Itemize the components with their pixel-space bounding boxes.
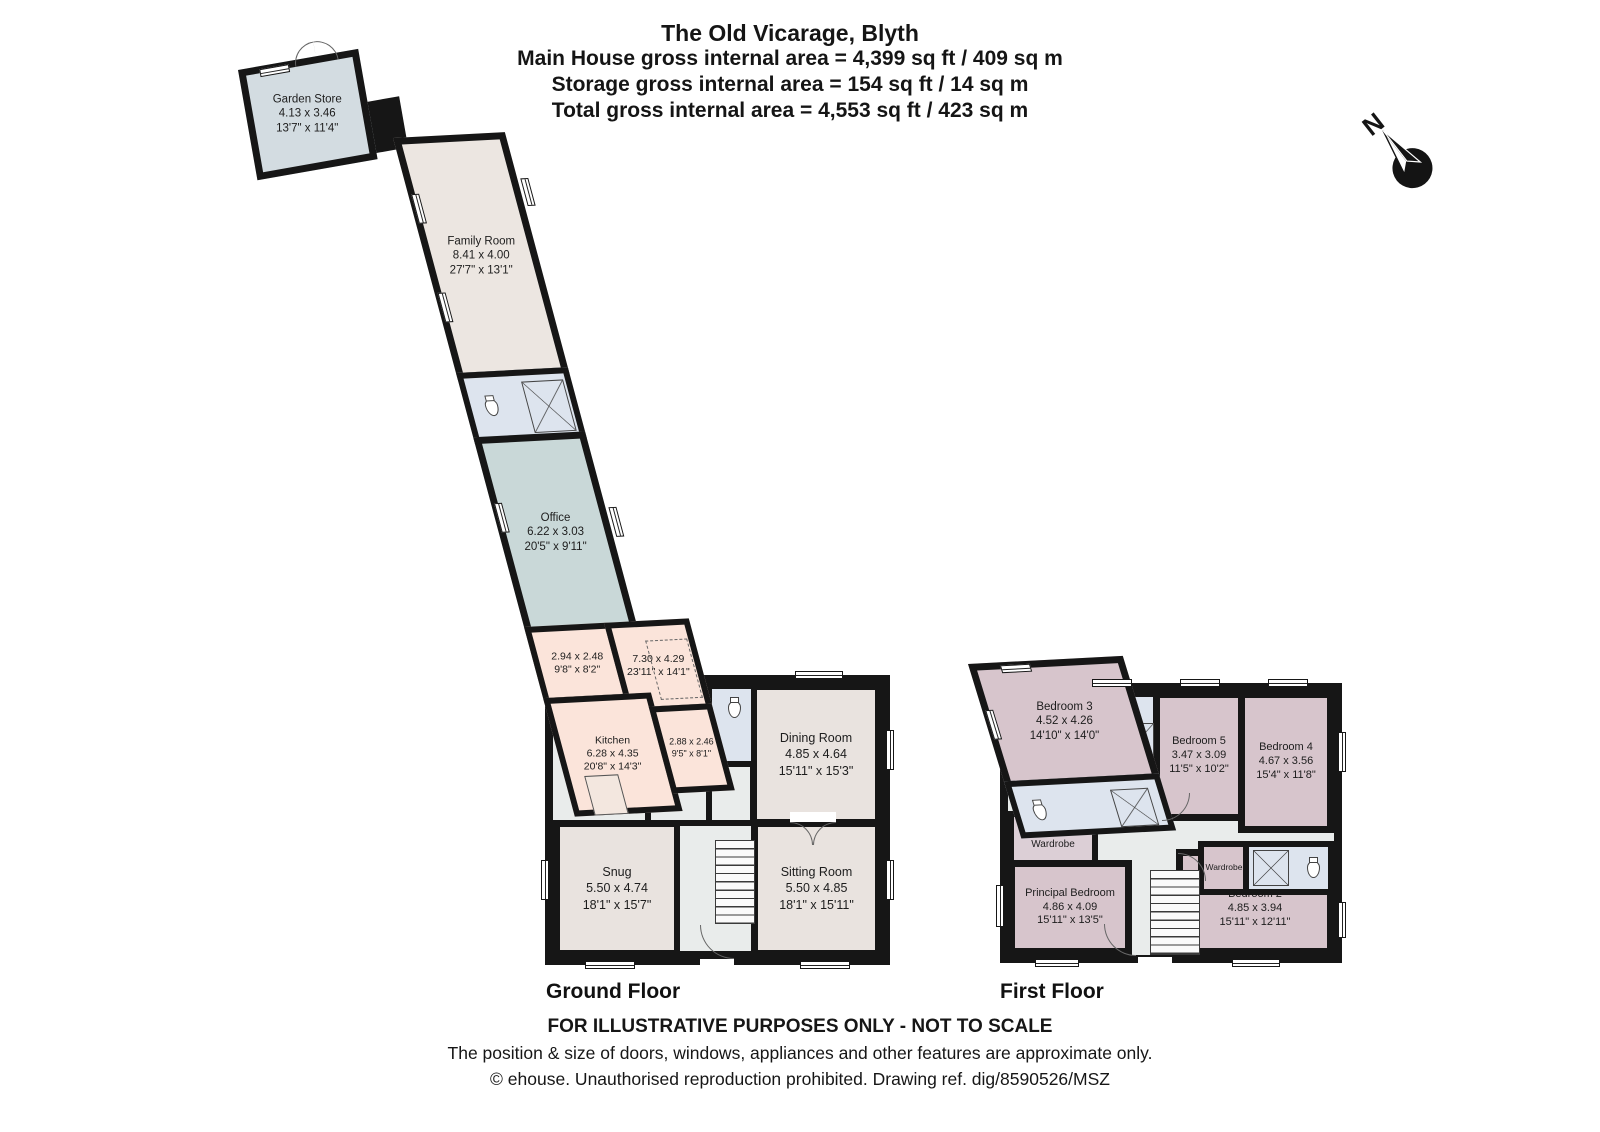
window [1338,902,1346,938]
room-snug-label: Snug 5.50 x 4.74 18'1" x 15'7" [583,864,652,914]
landing-door-gap [1138,957,1172,967]
first-floor-stairs [1150,870,1200,955]
floorplan-canvas: The Old Vicarage, Blyth Main House gross… [0,0,1600,1132]
first-floor-caption: First Floor [1000,980,1104,1004]
page-title: The Old Vicarage, Blyth [370,20,1210,46]
dining-door-gap [790,812,836,822]
not-to-scale-line: FOR ILLUSTRATIVE PURPOSES ONLY - NOT TO … [300,1016,1300,1038]
ground-stairs [715,840,755,924]
window [541,860,549,900]
room-dining: Dining Room 4.85 x 4.64 15'11" x 15'3" [750,683,882,826]
room-wardrobe-label: Wardrobe [1205,862,1242,873]
window [795,671,843,679]
window [800,961,850,969]
room-office-label: Office 6.22 x 3.03 20'5" x 9'11" [524,511,586,554]
ground-floor-caption: Ground Floor [546,980,680,1004]
room-snug: Snug 5.50 x 4.74 18'1" x 15'7" [553,820,681,957]
room-garden-store: Garden Store 4.13 x 3.46 13'7" x 11'4" [238,49,378,180]
storage-area-line: Storage gross internal area = 154 sq ft … [370,72,1210,98]
room-kitchen-label: Kitchen 6.28 x 4.35 20'8" x 14'3" [584,735,642,774]
room-boot-label: 2.88 x 2.46 9'5" x 8'1" [669,737,714,760]
window [1268,679,1308,687]
window [1338,732,1346,772]
room-family: Family Room 8.41 x 4.00 27'7" x 13'1" [393,132,570,380]
entrance-door-gap [700,959,734,969]
room-bedroom3-label: Bedroom 3 4.52 x 4.26 14'10" x 14'0" [1030,700,1099,743]
ground-wing: Family Room 8.41 x 4.00 27'7" x 13'1" Of… [393,132,652,689]
window [886,860,894,900]
room-sitting-label: Sitting Room 5.50 x 4.85 18'1" x 15'11" [779,864,854,914]
room-dining-label: Dining Room 4.85 x 4.64 15'11" x 15'3" [779,730,854,780]
window [1092,679,1132,687]
room-office: Office 6.22 x 3.03 20'5" x 9'11" [473,431,638,634]
window [1180,679,1220,687]
window [585,961,635,969]
north-arrow-icon [1360,103,1460,208]
room-principal-label: Principal Bedroom 4.86 x 4.09 15'11" x 1… [1025,887,1115,928]
total-area-line: Total gross internal area = 4,553 sq ft … [370,98,1210,124]
copyright-line: © ehouse. Unauthorised reproduction proh… [300,1069,1300,1090]
disclaimer-line: The position & size of doors, windows, a… [300,1043,1300,1064]
room-family-label: Family Room 8.41 x 4.00 27'7" x 13'1" [447,234,515,277]
window [886,730,894,770]
room-bedroom4-label: Bedroom 4 4.67 x 3.56 15'4" x 11'8" [1256,741,1316,782]
room-bedroom5-label: Bedroom 5 3.47 x 3.09 11'5" x 10'2" [1169,735,1229,776]
room-bedroom4: Bedroom 4 4.67 x 3.56 15'4" x 11'8" [1238,691,1334,833]
room-garden-store-label: Garden Store 4.13 x 3.46 13'7" x 11'4" [273,93,342,136]
compass: N [1350,95,1470,220]
window [1035,959,1079,967]
title-block: The Old Vicarage, Blyth Main House gross… [370,20,1210,123]
room-bedroom3: Bedroom 3 4.52 x 4.26 14'10" x 14'0" [968,656,1161,788]
bedroom3-ensuite [1004,773,1176,838]
room-shower [1243,841,1334,895]
window [1232,959,1280,967]
room-pantry-label: 2.94 x 2.48 9'8" x 8'2" [551,650,603,676]
main-area-line: Main House gross internal area = 4,399 s… [370,46,1210,72]
window [996,885,1004,927]
